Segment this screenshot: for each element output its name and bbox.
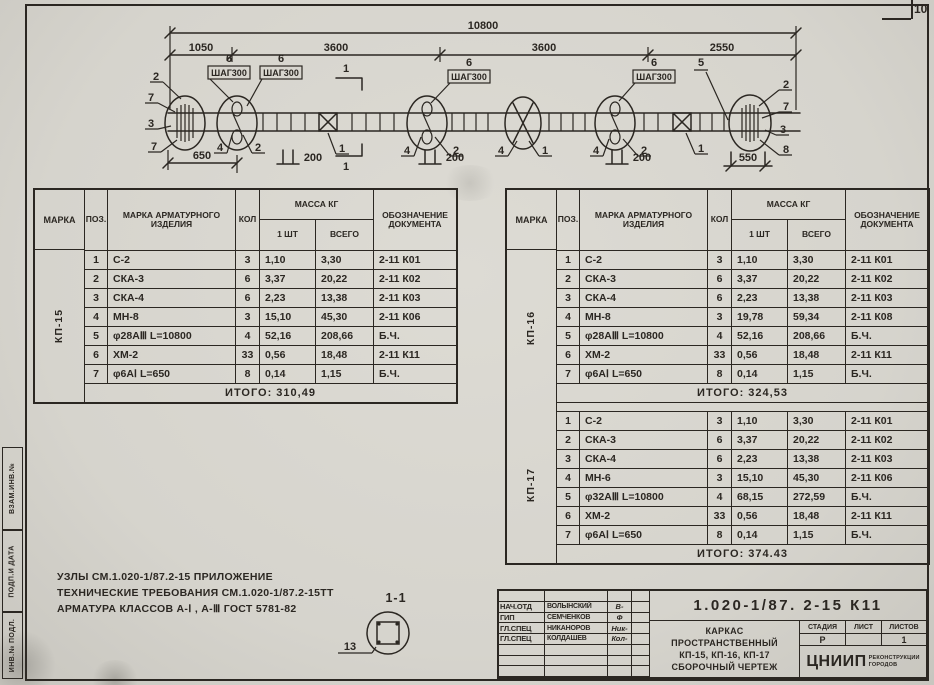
dim-200: 200 bbox=[446, 152, 464, 164]
header-name: МАРКА АРМАТУРНОГО ИЗДЕЛИЯ bbox=[107, 190, 235, 250]
dim-overall: 10800 bbox=[468, 20, 499, 32]
cell-doc: 2-11 К02 bbox=[845, 431, 928, 449]
cell-pos: 5 bbox=[557, 488, 579, 506]
step-callout: ШАГ300 bbox=[451, 72, 487, 82]
cell-name: φ28АⅢ L=10800 bbox=[107, 327, 235, 345]
cell-pos: 4 bbox=[557, 469, 579, 487]
spec-rows-kp17: 1 С-2 3 1,10 3,30 2-11 К01 2 СКА-3 6 3,3… bbox=[557, 411, 928, 544]
cell-pos: 6 bbox=[85, 346, 107, 364]
frame-bottom bbox=[25, 679, 929, 681]
header-pos: ПОЗ. bbox=[557, 190, 579, 250]
cell-doc: 2-11 К02 bbox=[373, 270, 456, 288]
cell-mass-one: 19,78 bbox=[731, 308, 787, 326]
header-marka: МАРКА bbox=[35, 190, 84, 250]
cell-pos: 4 bbox=[557, 308, 579, 326]
cell-pos: 1 bbox=[557, 251, 579, 269]
marka-column: МАРКА КП-16 КП-17 bbox=[507, 190, 557, 563]
cell-name: СКА-3 bbox=[579, 431, 707, 449]
signature: В- bbox=[608, 602, 632, 613]
signature: Кол- bbox=[608, 634, 632, 645]
signature-grid: НАЧ.ОТД ВОЛЫНСКИЙ В- ГИП СЕМЧЕНКОВ Ф ГЛ.… bbox=[499, 591, 650, 677]
cell-mass-one: 3,37 bbox=[731, 270, 787, 288]
pos-leader: 4 bbox=[498, 145, 505, 157]
cell-qty: 6 bbox=[235, 270, 259, 288]
cell-doc: 2-11 К11 bbox=[845, 507, 928, 525]
table-row: 4 МН-6 3 15,10 45,30 2-11 К06 bbox=[557, 468, 928, 487]
marka-kp17: КП-17 bbox=[525, 467, 537, 501]
cell-mass-one: 0,56 bbox=[731, 346, 787, 364]
cell-mass-one: 15,10 bbox=[259, 308, 315, 326]
sheets-value: 1 bbox=[882, 634, 926, 645]
cell-mass-one: 2,23 bbox=[731, 450, 787, 468]
cell-pos: 7 bbox=[85, 365, 107, 383]
pos-leader: 7 bbox=[783, 101, 789, 113]
cell-pos: 2 bbox=[557, 270, 579, 288]
cell-mass-total: 13,38 bbox=[315, 289, 373, 307]
callout-qty: 6 bbox=[226, 53, 232, 65]
marka-kp16: КП-16 bbox=[525, 311, 537, 345]
pos-leader: 3 bbox=[148, 118, 154, 130]
header-one: 1 ШТ bbox=[731, 219, 787, 250]
drawing-title: КАРКАС ПРОСТРАНСТВЕННЫЙ КП-15, КП-16, КП… bbox=[650, 621, 800, 677]
cell-mass-total: 20,22 bbox=[787, 270, 845, 288]
cell-name: φ32АⅢ L=10800 bbox=[579, 488, 707, 506]
dim-segment: 3600 bbox=[532, 42, 556, 54]
dim-550: 550 bbox=[739, 152, 757, 164]
cell-mass-one: 0,56 bbox=[259, 346, 315, 364]
dim-segment: 3600 bbox=[324, 42, 348, 54]
cell-pos: 4 bbox=[85, 308, 107, 326]
stamp-podp-data: ПОДП.И ДАТА bbox=[2, 530, 23, 612]
table-row: 7 φ6АⅠ L=650 8 0,14 1,15 Б.Ч. bbox=[85, 364, 456, 383]
cell-name: СКА-4 bbox=[579, 289, 707, 307]
pos-leader: 1 bbox=[542, 145, 548, 157]
cell-mass-total: 59,34 bbox=[787, 308, 845, 326]
table-total: ИТОГО: 324,53 bbox=[557, 383, 928, 402]
cell-mass-one: 68,15 bbox=[731, 488, 787, 506]
signature: Ник- bbox=[608, 623, 632, 634]
marka-label: КП-15 bbox=[35, 250, 84, 402]
pos-leader: 7 bbox=[148, 92, 154, 104]
cell-pos: 7 bbox=[557, 365, 579, 383]
cell-name: СКА-4 bbox=[107, 289, 235, 307]
header-pos: ПОЗ. bbox=[85, 190, 107, 250]
spec-table-kp15: МАРКА КП-15 ПОЗ. МАРКА АРМАТУРНОГО ИЗДЕЛ… bbox=[33, 188, 458, 404]
cell-qty: 6 bbox=[707, 270, 731, 288]
cell-name: СКА-3 bbox=[107, 270, 235, 288]
signer-name: СЕМЧЕНКОВ bbox=[545, 613, 608, 624]
cell-pos: 2 bbox=[557, 431, 579, 449]
stamp-inv-podl-label: ИНВ.№ ПОДЛ. bbox=[9, 619, 16, 672]
sheets-label: ЛИСТОВ bbox=[882, 621, 926, 633]
cell-qty: 8 bbox=[235, 365, 259, 383]
table-row: 1 С-2 3 1,10 3,30 2-11 К01 bbox=[85, 250, 456, 269]
signer-name: НИКАНОРОВ bbox=[545, 623, 608, 634]
pos-label-5: 5 bbox=[698, 57, 704, 69]
callout-qty: 6 bbox=[466, 57, 472, 69]
cell-doc: 2-11 К03 bbox=[373, 289, 456, 307]
pos-leader: 3 bbox=[780, 124, 786, 136]
cell-mass-one: 0,56 bbox=[731, 507, 787, 525]
pos-leader: 8 bbox=[783, 144, 789, 156]
cell-qty: 4 bbox=[707, 327, 731, 345]
table-row: 7 φ6АⅠ L=650 8 0,14 1,15 Б.Ч. bbox=[557, 525, 928, 544]
cell-doc: Б.Ч. bbox=[845, 365, 928, 383]
cell-name: СКА-4 bbox=[579, 450, 707, 468]
title-block: НАЧ.ОТД ВОЛЫНСКИЙ В- ГИП СЕМЧЕНКОВ Ф ГЛ.… bbox=[497, 589, 928, 679]
table-row: 3 СКА-4 6 2,23 13,38 2-11 К03 bbox=[557, 449, 928, 468]
cell-doc: 2-11 К06 bbox=[373, 308, 456, 326]
title-line: КП-15, КП-16, КП-17 bbox=[679, 649, 770, 661]
table-row: 6 ХМ-2 33 0,56 18,48 2-11 К11 bbox=[85, 345, 456, 364]
pos-leader: 2 bbox=[153, 71, 159, 83]
cell-qty: 3 bbox=[707, 412, 731, 430]
cell-mass-one: 52,16 bbox=[731, 327, 787, 345]
cell-mass-total: 18,48 bbox=[315, 346, 373, 364]
marka-label: КП-16 bbox=[507, 250, 556, 406]
cell-doc: 2-11 К11 bbox=[373, 346, 456, 364]
header-qty: КОЛ bbox=[707, 190, 731, 250]
org-name: ЦНИИП bbox=[806, 653, 866, 671]
cell-mass-one: 2,23 bbox=[731, 289, 787, 307]
cell-mass-one: 1,10 bbox=[259, 251, 315, 269]
cell-doc: 2-11 К01 bbox=[373, 251, 456, 269]
cell-name: С-2 bbox=[107, 251, 235, 269]
cell-doc: 2-11 К03 bbox=[845, 289, 928, 307]
cell-mass-total: 18,48 bbox=[787, 507, 845, 525]
reinforcement-cage-drawing: 10800 1050 3600 3600 2550 6 6 6 6 5 ШАГ3… bbox=[0, 0, 934, 192]
table-row: 4 МН-8 3 15,10 45,30 2-11 К06 bbox=[85, 307, 456, 326]
header-one: 1 ШТ bbox=[259, 219, 315, 250]
cell-pos: 5 bbox=[557, 327, 579, 345]
cell-qty: 6 bbox=[707, 289, 731, 307]
cell-qty: 6 bbox=[707, 450, 731, 468]
header-qty: КОЛ bbox=[235, 190, 259, 250]
stamp-vzam-inv: ВЗАМ.ИНВ.№ bbox=[2, 447, 23, 530]
dim-200: 200 bbox=[304, 152, 322, 164]
cell-pos: 6 bbox=[557, 346, 579, 364]
table-total: ИТОГО: 374.43 bbox=[557, 544, 928, 563]
table-total: ИТОГО: 310,49 bbox=[85, 383, 456, 402]
cell-name: φ6АⅠ L=650 bbox=[579, 526, 707, 544]
title-line: ПРОСТРАНСТВЕННЫЙ bbox=[671, 637, 778, 649]
cell-mass-total: 18,48 bbox=[787, 346, 845, 364]
table-row: 1 С-2 3 1,10 3,30 2-11 К01 bbox=[557, 411, 928, 430]
cell-mass-total: 3,30 bbox=[787, 251, 845, 269]
cell-qty: 33 bbox=[235, 346, 259, 364]
cell-qty: 8 bbox=[707, 526, 731, 544]
cell-doc: 2-11 К08 bbox=[845, 308, 928, 326]
cell-name: С-2 bbox=[579, 412, 707, 430]
pos-leader: 4 bbox=[404, 145, 411, 157]
section-detail-title: 1-1 bbox=[385, 591, 406, 605]
cell-mass-total: 1,15 bbox=[787, 526, 845, 544]
group-spacer bbox=[557, 402, 928, 411]
marka-label: КП-17 bbox=[507, 406, 556, 563]
signer-role: ГЛ.СПЕЦ bbox=[499, 623, 545, 634]
cell-name: ХМ-2 bbox=[579, 346, 707, 364]
scanned-drawing-sheet: { "page": { "number": "10" }, "side_stam… bbox=[0, 0, 934, 685]
signer-role: НАЧ.ОТД bbox=[499, 602, 545, 613]
stage-label: СТАДИЯ bbox=[800, 621, 846, 633]
callout-qty: 6 bbox=[651, 57, 657, 69]
cell-mass-total: 3,30 bbox=[315, 251, 373, 269]
cell-qty: 3 bbox=[235, 308, 259, 326]
cell-qty: 3 bbox=[707, 469, 731, 487]
cell-name: ХМ-2 bbox=[579, 507, 707, 525]
pos-leader: 7 bbox=[151, 141, 157, 153]
header-marka: МАРКА bbox=[507, 190, 556, 250]
step-callout: ШАГ300 bbox=[211, 68, 247, 78]
marka-kp15: КП-15 bbox=[53, 309, 65, 343]
note-line: УЗЛЫ СМ.1.020-1/87.2-15 ПРИЛОЖЕНИЕ bbox=[57, 569, 402, 585]
cell-name: СКА-3 bbox=[579, 270, 707, 288]
table-row: 2 СКА-3 6 3,37 20,22 2-11 К02 bbox=[85, 269, 456, 288]
spec-rows-kp16: 1 С-2 3 1,10 3,30 2-11 К01 2 СКА-3 6 3,3… bbox=[557, 250, 928, 383]
marka-column: МАРКА КП-15 bbox=[35, 190, 85, 402]
table-row: 2 СКА-3 6 3,37 20,22 2-11 К02 bbox=[557, 430, 928, 449]
dim-650: 650 bbox=[193, 150, 211, 162]
table-row: 6 ХМ-2 33 0,56 18,48 2-11 К11 bbox=[557, 345, 928, 364]
callout-qty: 6 bbox=[278, 53, 284, 65]
cell-pos: 1 bbox=[557, 412, 579, 430]
cell-mass-total: 20,22 bbox=[315, 270, 373, 288]
cell-doc: 2-11 К02 bbox=[845, 270, 928, 288]
cell-pos: 6 bbox=[557, 507, 579, 525]
cell-mass-one: 2,23 bbox=[259, 289, 315, 307]
table-row: 3 СКА-4 6 2,23 13,38 2-11 К03 bbox=[85, 288, 456, 307]
stamp-podp-data-label: ПОДП.И ДАТА bbox=[9, 545, 16, 597]
cell-mass-one: 0,14 bbox=[731, 365, 787, 383]
pos-leader: 2 bbox=[783, 79, 789, 91]
cell-pos: 3 bbox=[557, 450, 579, 468]
detail-pos-label: 13 bbox=[344, 641, 356, 653]
cell-qty: 4 bbox=[707, 488, 731, 506]
cell-mass-total: 20,22 bbox=[787, 431, 845, 449]
cell-mass-total: 13,38 bbox=[787, 289, 845, 307]
cell-name: φ6АⅠ L=650 bbox=[579, 365, 707, 383]
cell-mass-one: 52,16 bbox=[259, 327, 315, 345]
cell-qty: 6 bbox=[707, 431, 731, 449]
cell-qty: 4 bbox=[235, 327, 259, 345]
pos-leader: 4 bbox=[593, 145, 600, 157]
table-row: 4 МН-8 3 19,78 59,34 2-11 К08 bbox=[557, 307, 928, 326]
dim-segment: 2550 bbox=[710, 42, 734, 54]
cell-qty: 33 bbox=[707, 507, 731, 525]
stamp-vzam-inv-label: ВЗАМ.ИНВ.№ bbox=[9, 463, 16, 514]
signer-role: ГЛ.СПЕЦ bbox=[499, 634, 545, 645]
stage-header-row: СТАДИЯ ЛИСТ ЛИСТОВ bbox=[800, 621, 926, 634]
spec-rows: 1 С-2 3 1,10 3,30 2-11 К01 2 СКА-3 6 3,3… bbox=[85, 250, 456, 383]
header-mass: МАССА КГ bbox=[259, 190, 373, 219]
header-total: ВСЕГО bbox=[315, 219, 373, 250]
stamp-inv-podl: ИНВ.№ ПОДЛ. bbox=[2, 612, 23, 679]
cell-pos: 2 bbox=[85, 270, 107, 288]
cell-doc: 2-11 К06 bbox=[845, 469, 928, 487]
organization: ЦНИИП РЕКОНСТРУКЦИИ ГОРОДОВ bbox=[800, 646, 926, 677]
cell-name: ХМ-2 bbox=[107, 346, 235, 364]
header-doc: ОБОЗНАЧЕНИЕ ДОКУМЕНТА bbox=[845, 190, 928, 250]
section-mark-label: 1 bbox=[343, 63, 349, 75]
signer-role: ГИП bbox=[499, 613, 545, 624]
header-mass: МАССА КГ bbox=[731, 190, 845, 219]
table-row: 5 φ28АⅢ L=10800 4 52,16 208,66 Б.Ч. bbox=[85, 326, 456, 345]
cell-mass-total: 1,15 bbox=[315, 365, 373, 383]
cell-name: С-2 bbox=[579, 251, 707, 269]
cell-doc: Б.Ч. bbox=[373, 365, 456, 383]
pos-leader: 1 bbox=[339, 143, 345, 155]
cell-doc: 2-11 К11 bbox=[845, 346, 928, 364]
stage-value: Р bbox=[800, 634, 846, 645]
cell-mass-one: 3,37 bbox=[259, 270, 315, 288]
cell-pos: 1 bbox=[85, 251, 107, 269]
stage-value-row: Р 1 bbox=[800, 634, 926, 646]
section-mark-label: 1 bbox=[343, 161, 349, 173]
cell-mass-total: 208,66 bbox=[787, 327, 845, 345]
table-header: ПОЗ. МАРКА АРМАТУРНОГО ИЗДЕЛИЯ КОЛ МАССА… bbox=[557, 190, 928, 250]
pos-leader: 1 bbox=[698, 143, 704, 155]
cell-name: φ28АⅢ L=10800 bbox=[579, 327, 707, 345]
cell-doc: 2-11 К03 bbox=[845, 450, 928, 468]
title-line: КАРКАС bbox=[705, 625, 743, 637]
spec-table-kp16-kp17: МАРКА КП-16 КП-17 ПОЗ. МАРКА АРМАТУРНОГО… bbox=[505, 188, 930, 565]
cell-pos: 7 bbox=[557, 526, 579, 544]
cell-mass-total: 208,66 bbox=[315, 327, 373, 345]
cell-doc: Б.Ч. bbox=[373, 327, 456, 345]
cell-doc: 2-11 К01 bbox=[845, 412, 928, 430]
sheet-value bbox=[846, 634, 882, 645]
header-doc: ОБОЗНАЧЕНИЕ ДОКУМЕНТА bbox=[373, 190, 456, 250]
cell-mass-one: 0,14 bbox=[731, 526, 787, 544]
cell-doc: 2-11 К01 bbox=[845, 251, 928, 269]
sheet-label: ЛИСТ bbox=[846, 621, 882, 633]
step-callout: ШАГ300 bbox=[263, 68, 299, 78]
org-sub: ГОРОДОВ bbox=[869, 662, 920, 669]
table-row: 5 φ28АⅢ L=10800 4 52,16 208,66 Б.Ч. bbox=[557, 326, 928, 345]
cell-mass-one: 15,10 bbox=[731, 469, 787, 487]
cell-name: МН-8 bbox=[107, 308, 235, 326]
cell-pos: 5 bbox=[85, 327, 107, 345]
signature: Ф bbox=[608, 613, 632, 624]
cell-mass-total: 45,30 bbox=[787, 469, 845, 487]
cell-mass-total: 1,15 bbox=[787, 365, 845, 383]
cell-doc: Б.Ч. bbox=[845, 488, 928, 506]
header-name: МАРКА АРМАТУРНОГО ИЗДЕЛИЯ bbox=[579, 190, 707, 250]
cell-qty: 33 bbox=[707, 346, 731, 364]
title-line: СБОРОЧНЫЙ ЧЕРТЕЖ bbox=[671, 661, 777, 673]
table-row: 7 φ6АⅠ L=650 8 0,14 1,15 Б.Ч. bbox=[557, 364, 928, 383]
scan-smudge bbox=[90, 660, 140, 685]
cell-mass-total: 272,59 bbox=[787, 488, 845, 506]
cell-qty: 3 bbox=[707, 308, 731, 326]
document-number: 1.020-1/87. 2-15 К11 bbox=[650, 591, 926, 621]
cell-mass-one: 0,14 bbox=[259, 365, 315, 383]
table-row: 3 СКА-4 6 2,23 13,38 2-11 К03 bbox=[557, 288, 928, 307]
table-row: 6 ХМ-2 33 0,56 18,48 2-11 К11 bbox=[557, 506, 928, 525]
cell-mass-total: 3,30 bbox=[787, 412, 845, 430]
table-row: 5 φ32АⅢ L=10800 4 68,15 272,59 Б.Ч. bbox=[557, 487, 928, 506]
cell-mass-one: 1,10 bbox=[731, 251, 787, 269]
pos-leader: 4 bbox=[217, 142, 224, 154]
cell-pos: 3 bbox=[557, 289, 579, 307]
dim-segment: 1050 bbox=[189, 42, 213, 54]
signer-name: КОЛДАШЕВ bbox=[545, 634, 608, 645]
cell-mass-total: 13,38 bbox=[787, 450, 845, 468]
cell-name: φ6АⅠ L=650 bbox=[107, 365, 235, 383]
cell-qty: 3 bbox=[235, 251, 259, 269]
cell-mass-one: 1,10 bbox=[731, 412, 787, 430]
cell-mass-total: 45,30 bbox=[315, 308, 373, 326]
cell-name: МН-8 bbox=[579, 308, 707, 326]
header-total: ВСЕГО bbox=[787, 219, 845, 250]
step-callout: ШАГ300 bbox=[636, 72, 672, 82]
cell-qty: 6 bbox=[235, 289, 259, 307]
cell-pos: 3 bbox=[85, 289, 107, 307]
signer-name: ВОЛЫНСКИЙ bbox=[545, 602, 608, 613]
cell-qty: 8 bbox=[707, 365, 731, 383]
cell-mass-one: 3,37 bbox=[731, 431, 787, 449]
dim-200: 200 bbox=[633, 152, 651, 164]
cell-doc: Б.Ч. bbox=[845, 526, 928, 544]
table-header: ПОЗ. МАРКА АРМАТУРНОГО ИЗДЕЛИЯ КОЛ МАССА… bbox=[85, 190, 456, 250]
cell-name: МН-6 bbox=[579, 469, 707, 487]
pos-leader: 2 bbox=[255, 142, 261, 154]
table-row: 1 С-2 3 1,10 3,30 2-11 К01 bbox=[557, 250, 928, 269]
section-detail-1-1: 1-1 13 bbox=[330, 588, 450, 676]
cell-doc: Б.Ч. bbox=[845, 327, 928, 345]
table-row: 2 СКА-3 6 3,37 20,22 2-11 К02 bbox=[557, 269, 928, 288]
cell-qty: 3 bbox=[707, 251, 731, 269]
